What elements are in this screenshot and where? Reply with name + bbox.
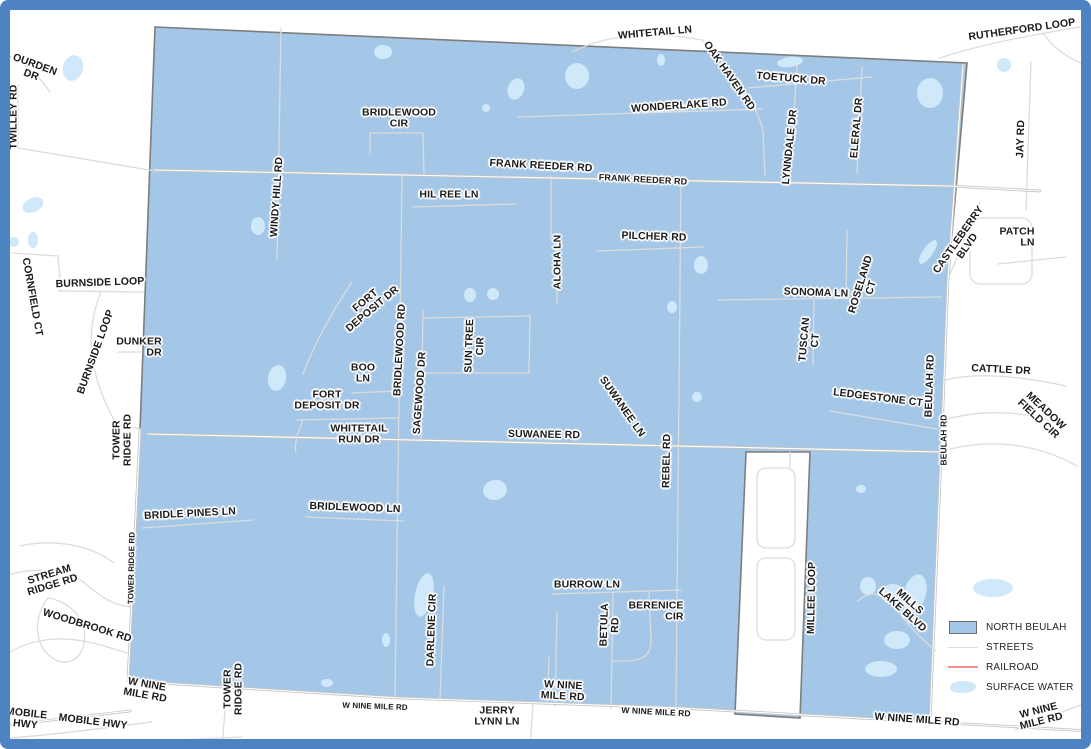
region-swatch-icon <box>948 621 978 634</box>
legend-label-railroad: RAILROAD <box>986 662 1039 673</box>
legend-label-streets: STREETS <box>986 642 1034 653</box>
railroad-line-icon <box>948 666 978 668</box>
legend-item-surface-water: SURFACE WATER <box>948 680 1074 694</box>
legend-item-railroad: RAILROAD <box>948 660 1074 674</box>
legend: NORTH BEULAH STREETS RAILROAD SURFACE WA… <box>948 620 1074 694</box>
legend-label-north-beulah: NORTH BEULAH <box>986 622 1067 633</box>
map-drawing <box>0 0 1091 749</box>
water-blob-icon <box>948 681 978 693</box>
region-polygon <box>128 27 967 722</box>
legend-item-north-beulah: NORTH BEULAH <box>948 620 1074 634</box>
legend-label-surface-water: SURFACE WATER <box>986 682 1074 693</box>
map-canvas[interactable]: OURDENDRTWILLEY RDWHITETAIL LNRUTHERFORD… <box>0 0 1091 749</box>
street-line-icon <box>948 647 978 648</box>
legend-item-streets: STREETS <box>948 640 1074 654</box>
